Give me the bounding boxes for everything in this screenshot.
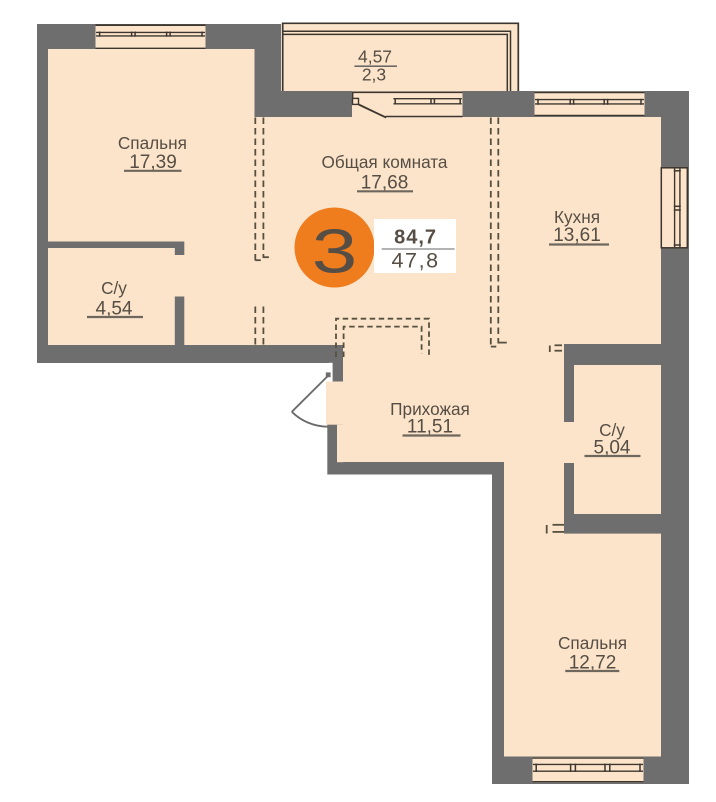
svg-text:84,7: 84,7 [394,227,437,249]
svg-text:Общая комната: Общая комната [322,152,448,172]
svg-text:С/у: С/у [101,278,127,298]
svg-text:2,3: 2,3 [362,65,386,85]
svg-text:Кухня: Кухня [554,207,600,227]
svg-text:4,57: 4,57 [358,46,392,66]
svg-text:Спальня: Спальня [118,133,187,153]
svg-text:Спальня: Спальня [558,633,627,653]
svg-text:47,8: 47,8 [391,249,439,273]
svg-text:13,61: 13,61 [553,225,601,246]
svg-text:3: 3 [312,217,358,286]
